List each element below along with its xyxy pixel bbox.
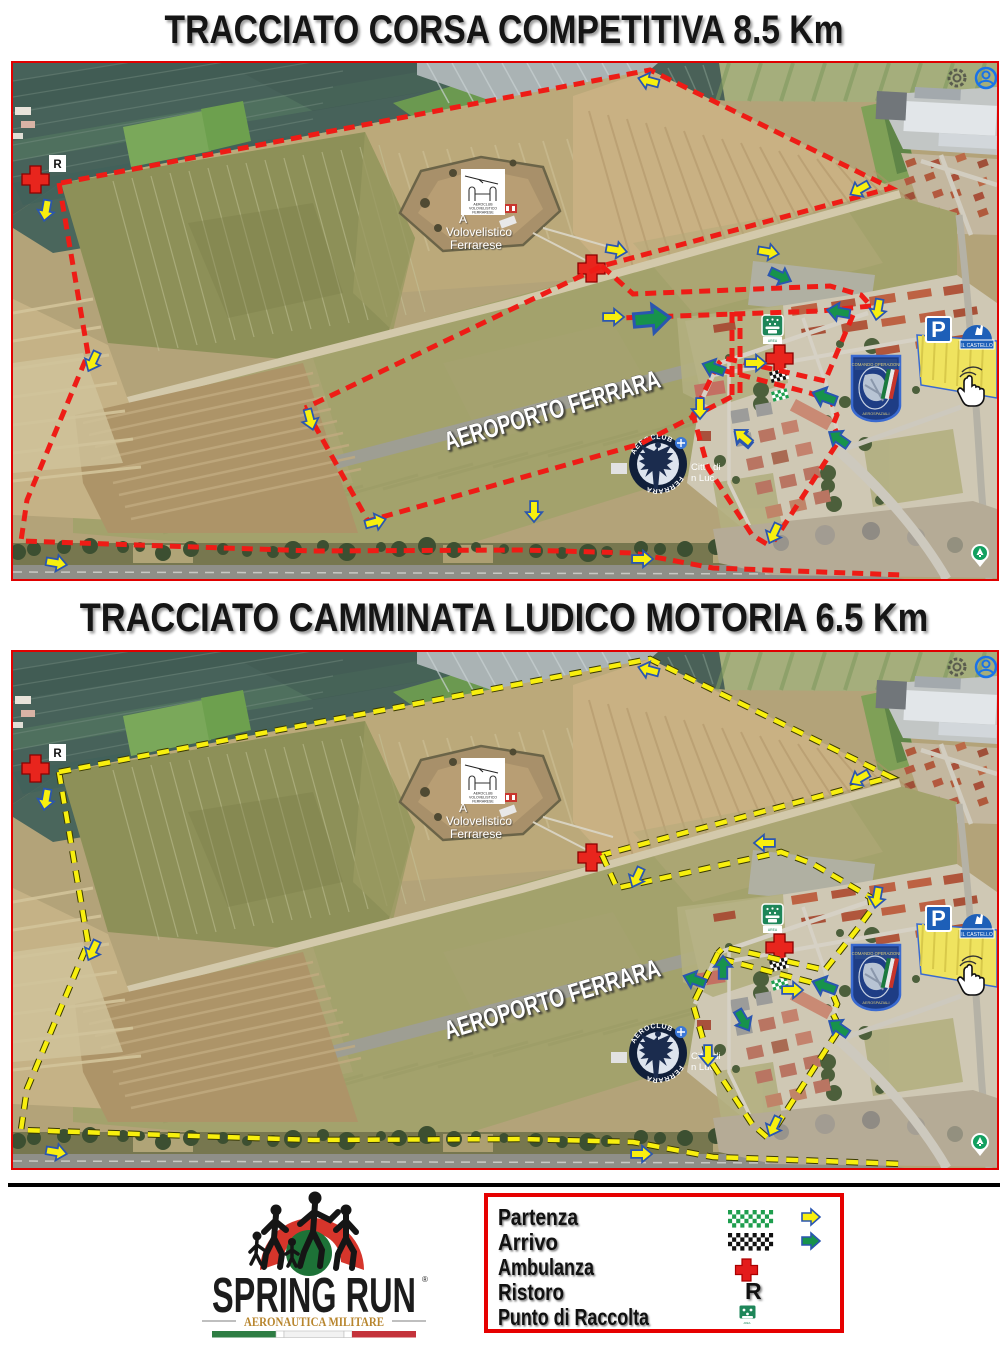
svg-text:®: ® [422,1275,428,1284]
svg-text:Partenza: Partenza [498,1204,578,1230]
svg-text:Arrivo: Arrivo [498,1229,558,1255]
svg-text:Punto di Raccolta: Punto di Raccolta [498,1304,649,1329]
svg-text:AREA: AREA [743,1321,750,1325]
svg-text:Ambulanza: Ambulanza [498,1254,594,1280]
svg-text:Ristoro: Ristoro [498,1279,564,1305]
svg-text:R: R [745,1278,762,1304]
svg-text:AERONAUTICA MILITARE: AERONAUTICA MILITARE [244,1314,384,1329]
